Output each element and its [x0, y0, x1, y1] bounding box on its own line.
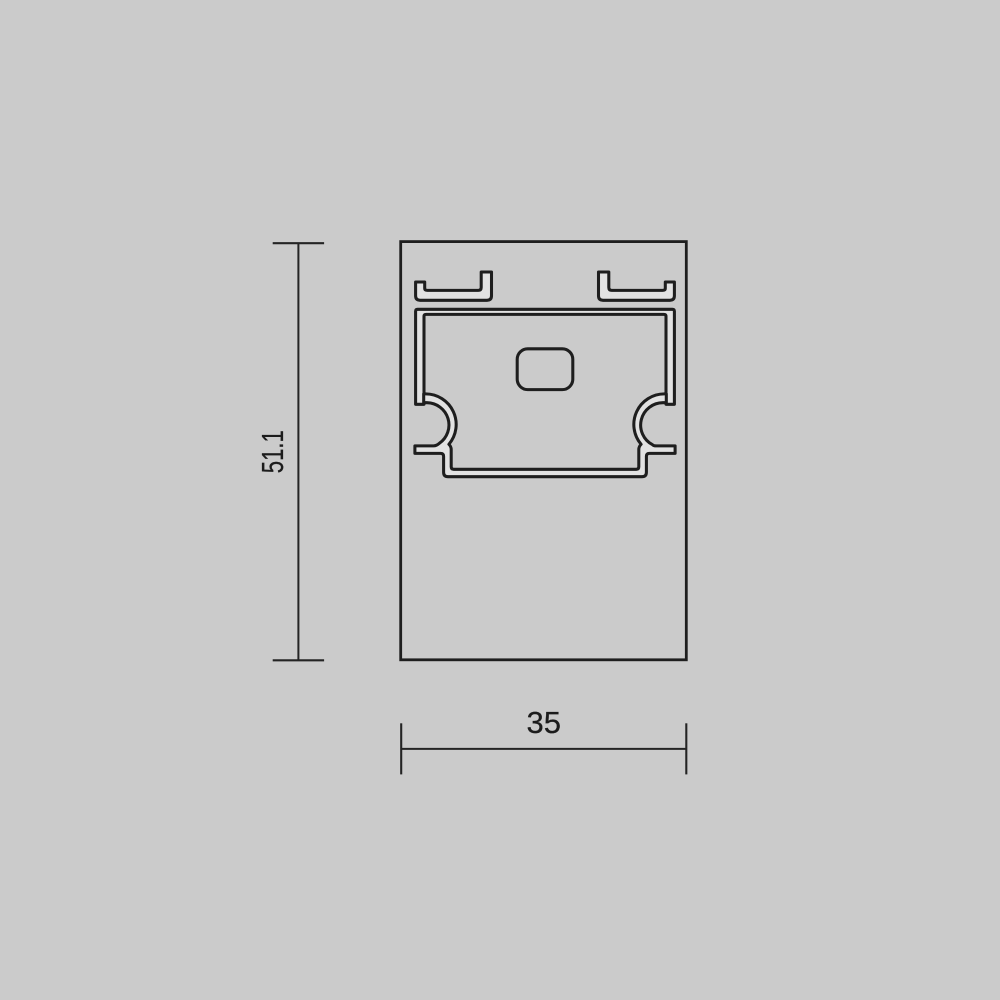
svg-text:35: 35 — [526, 705, 560, 740]
svg-text:51.1: 51.1 — [255, 430, 290, 473]
